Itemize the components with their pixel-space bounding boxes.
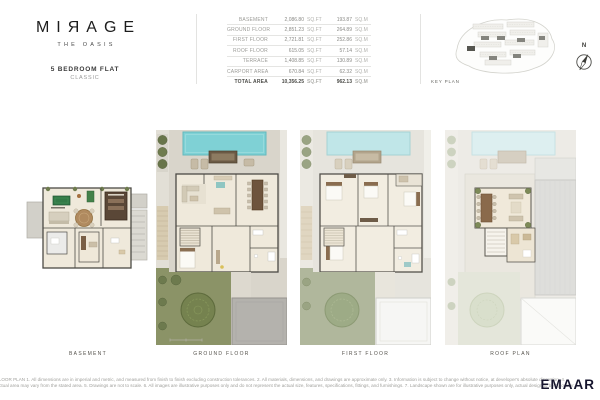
area-sqm-unit: SQ.M (352, 37, 369, 43)
compass-icon (573, 49, 595, 73)
area-sqm-value: 57.14 (324, 48, 352, 54)
area-sqft-value: 2,851.23 (268, 27, 304, 33)
area-row-ground-floor: GROUND FLOOR 2,851.23 SQ.FT 264.89 SQ.M (227, 25, 371, 35)
area-sqm-unit: SQ.M (352, 17, 369, 23)
header-divider-left (196, 14, 197, 84)
unit-type-label: 5 BEDROOM FLAT (25, 66, 145, 73)
ground-floor-plan (156, 130, 287, 345)
area-sqm-unit: SQ.M (352, 27, 369, 33)
area-sqft-value: 10,356.25 (268, 79, 304, 85)
unit-info: 5 BEDROOM FLAT CLASSIC (25, 66, 145, 81)
basement-plan-label: BASEMENT (23, 351, 153, 357)
area-row-basement: BASEMENT 2,086.80 SQ.FT 193.87 SQ.M (227, 15, 371, 25)
area-row-terrace: TERRACE 1,408.85 SQ.FT 130.89 SQ.M (227, 57, 371, 67)
project-logo-subtitle: THE OASIS (25, 42, 145, 48)
area-label: TOTAL AREA (227, 79, 268, 85)
area-label: CARPORT AREA (227, 69, 268, 75)
area-sqm-value: 130.89 (324, 58, 352, 64)
disclaimer: FLOOR PLAN 1. All dimensions are in impe… (0, 377, 516, 389)
basement-floor-plan (23, 130, 153, 345)
ground-floor-plan-label: GROUND FLOOR (156, 351, 287, 357)
area-sqm-unit: SQ.M (352, 69, 369, 75)
area-label: GROUND FLOOR (227, 27, 268, 33)
area-row-first-floor: FIRST FLOOR 2,721.81 SQ.FT 252.86 SQ.M (227, 36, 371, 46)
area-sqm-unit: SQ.M (352, 48, 369, 54)
area-sqft-value: 2,086.80 (268, 17, 304, 23)
area-sqm-value: 962.13 (324, 79, 352, 85)
area-sqft-unit: SQ.FT (304, 37, 324, 43)
area-sqm-value: 252.86 (324, 37, 352, 43)
area-sqft-unit: SQ.FT (304, 58, 324, 64)
area-sqft-unit: SQ.FT (304, 79, 324, 85)
first-floor-plan (300, 130, 431, 345)
area-sqm-unit: SQ.M (352, 79, 369, 85)
area-label: TERRACE (227, 58, 268, 64)
area-sqft-unit: SQ.FT (304, 17, 324, 23)
first-floor-plan-label: FIRST FLOOR (300, 351, 431, 357)
roof-plan-image (445, 130, 576, 345)
basement-floor-plan-image (23, 130, 153, 345)
header-divider-right (420, 14, 421, 84)
area-row-total: TOTAL AREA 10,356.25 SQ.FT 962.13 SQ.M (227, 77, 371, 86)
key-plan-map (447, 11, 566, 83)
area-sqft-value: 670.84 (268, 69, 304, 75)
area-row-roof-floor: ROOF FLOOR 615.05 SQ.FT 57.14 SQ.M (227, 46, 371, 56)
area-sqft-value: 1,408.85 (268, 58, 304, 64)
roof-plan (445, 130, 576, 345)
area-label: FIRST FLOOR (227, 37, 268, 43)
area-table: BASEMENT 2,086.80 SQ.FT 193.87 SQ.M GROU… (227, 15, 371, 87)
area-label: ROOF FLOOR (227, 48, 268, 54)
disclaimer-line-2: Actual area may vary from the stated are… (0, 383, 516, 389)
disclaimer-line-1: FLOOR PLAN 1. All dimensions are in impe… (0, 377, 516, 383)
emaar-logo: EMAAR (541, 377, 596, 392)
area-sqm-value: 264.89 (324, 27, 352, 33)
area-sqft-unit: SQ.FT (304, 48, 324, 54)
roof-plan-label: ROOF PLAN (445, 351, 576, 357)
area-sqft-value: 2,721.81 (268, 37, 304, 43)
key-plan-label: KEY PLAN (431, 79, 460, 84)
area-label: BASEMENT (227, 17, 268, 23)
project-logo-title: MIЯAGE (25, 19, 145, 37)
project-logo: MIЯAGE THE OASIS (25, 19, 145, 48)
compass: N (572, 43, 596, 78)
first-floor-plan-image (300, 130, 431, 345)
area-sqm-unit: SQ.M (352, 58, 369, 64)
area-sqft-value: 615.05 (268, 48, 304, 54)
unit-variant-label: CLASSIC (25, 75, 145, 81)
area-sqft-unit: SQ.FT (304, 27, 324, 33)
area-sqft-unit: SQ.FT (304, 69, 324, 75)
area-row-carport: CARPORT AREA 670.84 SQ.FT 62.32 SQ.M (227, 67, 371, 77)
ground-floor-plan-image (156, 130, 287, 345)
brochure-page: MIЯAGE THE OASIS 5 BEDROOM FLAT CLASSIC … (0, 0, 600, 400)
area-sqm-value: 62.32 (324, 69, 352, 75)
area-sqm-value: 193.87 (324, 17, 352, 23)
